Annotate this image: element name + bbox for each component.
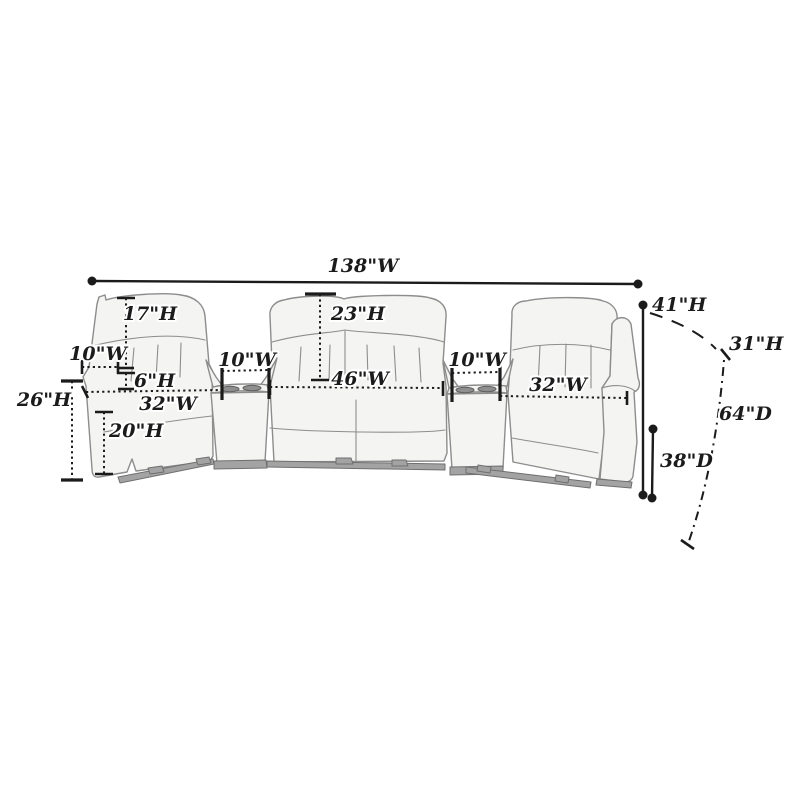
dim-label-reclined-back-height: 31"H bbox=[729, 333, 784, 355]
right-rail-foot bbox=[477, 465, 491, 473]
right-console-front bbox=[447, 393, 507, 469]
dim-label-left-arm-width: 10"W bbox=[69, 343, 128, 365]
left-rail-foot bbox=[196, 457, 211, 465]
dim-label-arm-to-seat-height: 6"H bbox=[134, 370, 176, 392]
dim-label-back-cushion-height: 17"H bbox=[123, 303, 178, 325]
dim-label-center-back-height: 23"H bbox=[330, 303, 386, 325]
center-rail bbox=[267, 461, 445, 470]
cup-holder bbox=[243, 385, 261, 390]
cup-holder bbox=[478, 386, 496, 391]
dim-label-center-section-width: 46"W bbox=[331, 368, 390, 390]
dim-label-right-console-width: 10"W bbox=[448, 349, 507, 371]
diagram-canvas: 138"W 17"H 10"W 6"H 26"H 32"W 2 bbox=[0, 0, 800, 800]
cup-holder bbox=[456, 387, 474, 392]
dim-label-reclined-depth: 64"D bbox=[719, 403, 772, 425]
left-rail-foot bbox=[148, 466, 164, 474]
dim-label-overall-height: 41"H bbox=[652, 294, 707, 316]
dim-label-upright-depth: 38"D bbox=[660, 450, 713, 472]
left-console-base bbox=[214, 460, 267, 469]
center-rail-foot bbox=[336, 458, 353, 464]
cup-holder bbox=[221, 386, 239, 391]
dim-reclined-back-height: 31"H bbox=[650, 313, 784, 360]
dim-arm-height: 26"H bbox=[16, 381, 83, 480]
dim-overall-width: 138"W bbox=[88, 255, 643, 289]
dim-label-left-console-width: 10"W bbox=[218, 349, 277, 371]
dim-upright-depth: 38"D bbox=[648, 425, 714, 503]
left-console-front bbox=[211, 392, 269, 463]
dim-label-left-seat-width: 32"W bbox=[139, 393, 198, 415]
dim-label-seat-height: 20"H bbox=[108, 420, 164, 442]
sofa-dimension-diagram: 138"W 17"H 10"W 6"H 26"H 32"W 2 bbox=[0, 0, 800, 800]
left-console bbox=[206, 358, 277, 463]
center-rail-foot bbox=[392, 460, 408, 466]
dim-label-arm-height: 26"H bbox=[16, 389, 72, 411]
right-rail-foot bbox=[555, 475, 569, 483]
dim-label-right-seat-width: 32"W bbox=[529, 374, 588, 396]
dim-label-overall-width: 138"W bbox=[328, 255, 401, 277]
